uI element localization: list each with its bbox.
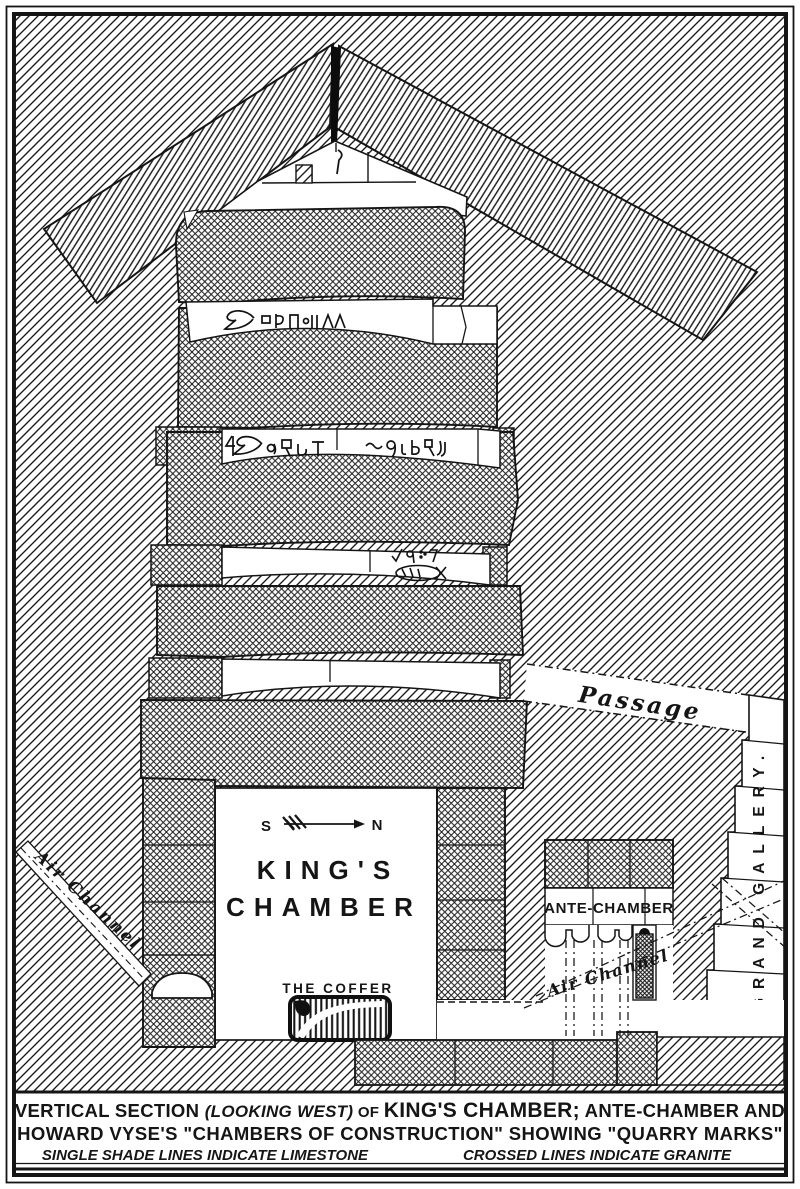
granite-beam-4	[157, 586, 523, 657]
floor-step-block	[617, 1032, 657, 1085]
granite-beam-1	[176, 207, 465, 303]
caption-line-3-left: SINGLE SHADE LINES INDICATE LIMESTONE	[42, 1147, 369, 1164]
engraving-page: Passage GRAND GALLERY. S N KING'S CHAMBE…	[0, 0, 800, 1189]
limestone-floor-slab	[657, 1037, 784, 1085]
caption-line-1: VERTICAL SECTION (LOOKING WEST) OF KING'…	[15, 1099, 785, 1122]
caption-line-3-right: CROSSED LINES INDICATE GRANITE	[463, 1147, 732, 1164]
caption-line-2: HOWARD VYSE'S "CHAMBERS OF CONSTRUCTION"…	[17, 1123, 783, 1144]
granite-floor-band	[355, 1040, 657, 1085]
gap-4-left-wall-block	[149, 658, 222, 698]
kings-chamber-label-line2: CHAMBER	[226, 892, 422, 922]
compass-south-label: S	[261, 818, 271, 835]
gable-patch-stone	[296, 165, 312, 183]
grand-gallery-label: GRAND GALLERY.	[751, 747, 768, 1010]
the-coffer	[290, 997, 390, 1040]
west-wall	[143, 778, 215, 1047]
ante-chamber-granite-band	[545, 840, 673, 888]
east-wall	[437, 788, 505, 1000]
caption-box: VERTICAL SECTION (LOOKING WEST) OF KING'…	[15, 1092, 785, 1171]
ante-chamber-label: ANTE-CHAMBER	[544, 900, 674, 917]
floor-passage-white	[437, 1000, 784, 1040]
vertical-section-diagram: Passage GRAND GALLERY. S N KING'S CHAMBE…	[0, 0, 800, 1189]
coffer-label: THE COFFER	[282, 981, 393, 996]
kings-chamber-label-line1: KING'S	[257, 855, 400, 885]
granite-beam-5	[141, 700, 527, 788]
gap-3-left-wall-block	[151, 545, 222, 585]
compass-north-label: N	[372, 817, 383, 834]
